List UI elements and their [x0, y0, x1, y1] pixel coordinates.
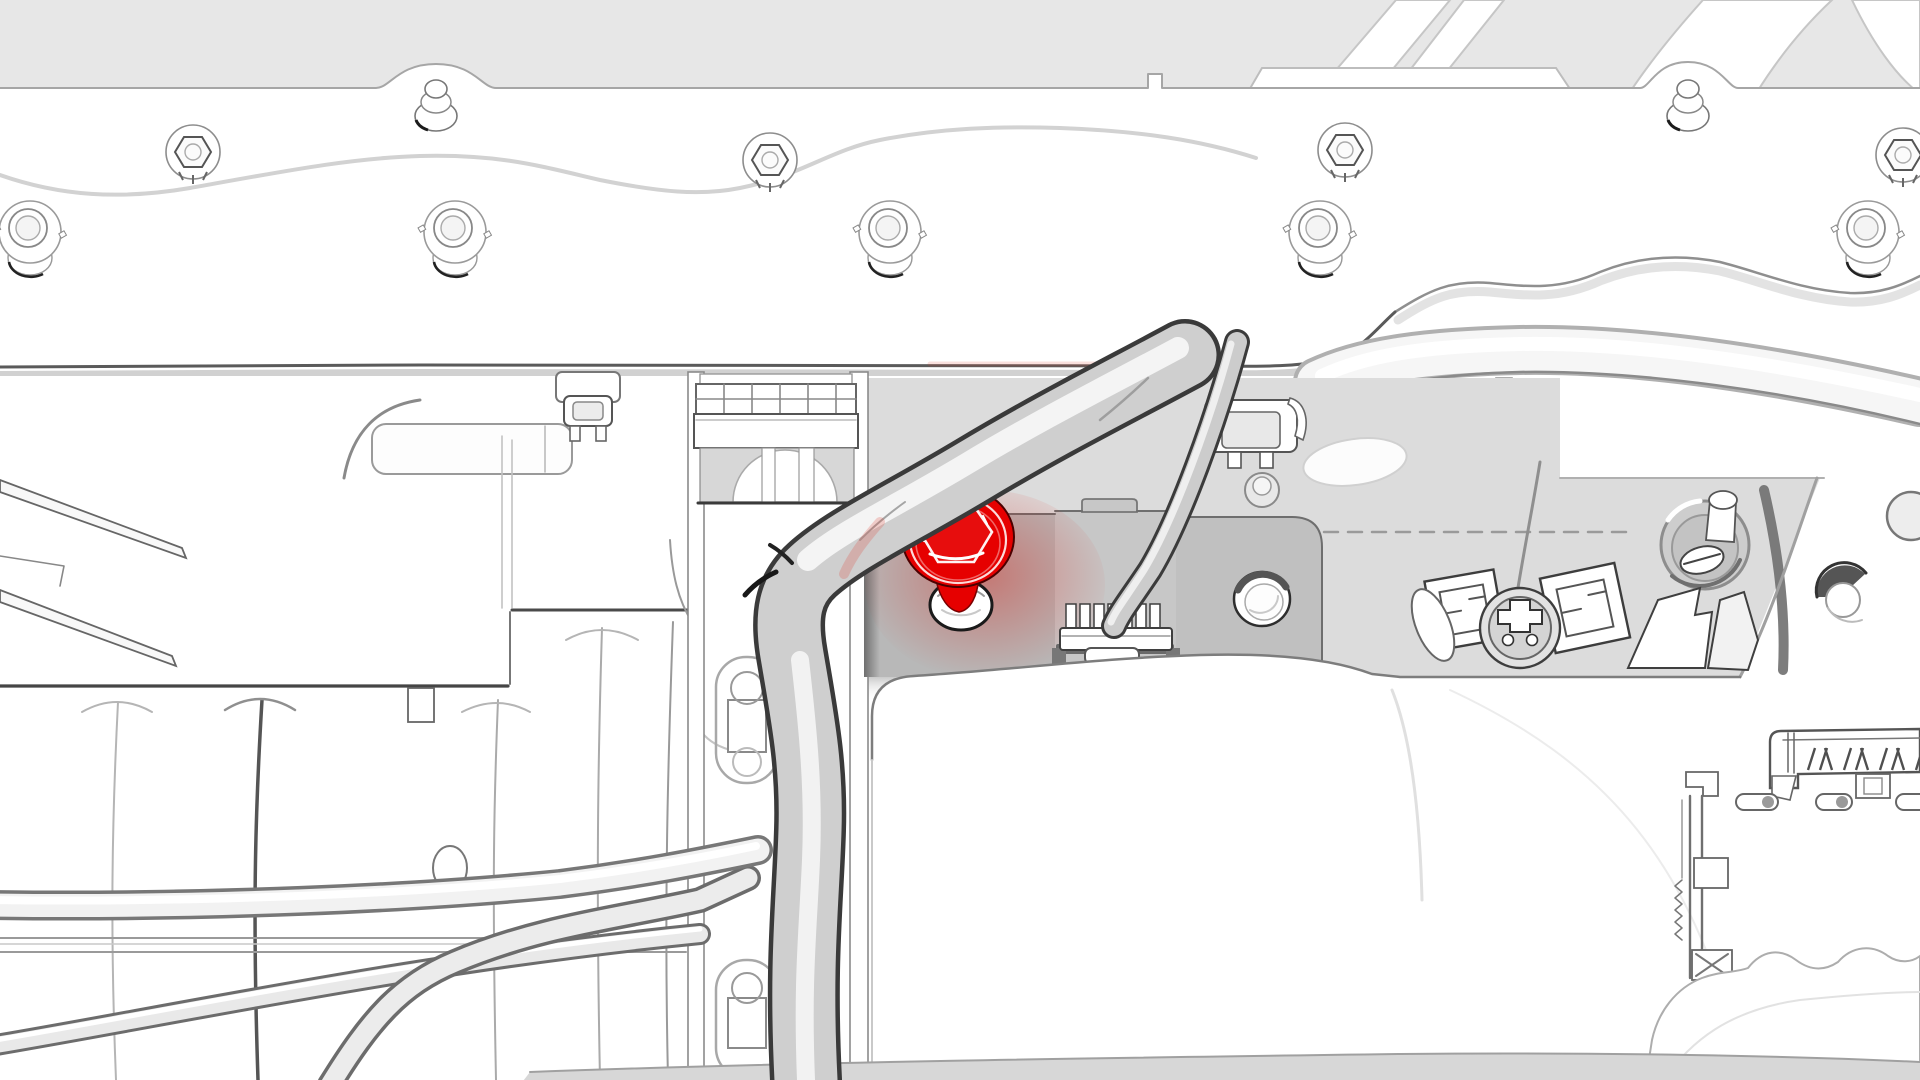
edge-tab — [408, 688, 434, 722]
cavity-strip — [762, 448, 775, 502]
harness-tube-sheen — [800, 660, 812, 1080]
grille-beam — [694, 414, 858, 448]
grille-top-bar — [700, 374, 852, 384]
small-cylinder — [1245, 473, 1279, 507]
cavity-strip — [799, 448, 814, 502]
label-plate — [372, 424, 572, 474]
bracket-hole — [1234, 572, 1290, 626]
top-assembly — [0, 0, 1920, 382]
bracket-tab — [1082, 499, 1137, 512]
underbody-illustration — [0, 0, 1920, 1080]
round-connector — [1480, 588, 1560, 668]
floor-cover — [872, 655, 1745, 1080]
illustration-canvas — [0, 0, 1920, 1080]
floor-fill — [872, 655, 1740, 1080]
